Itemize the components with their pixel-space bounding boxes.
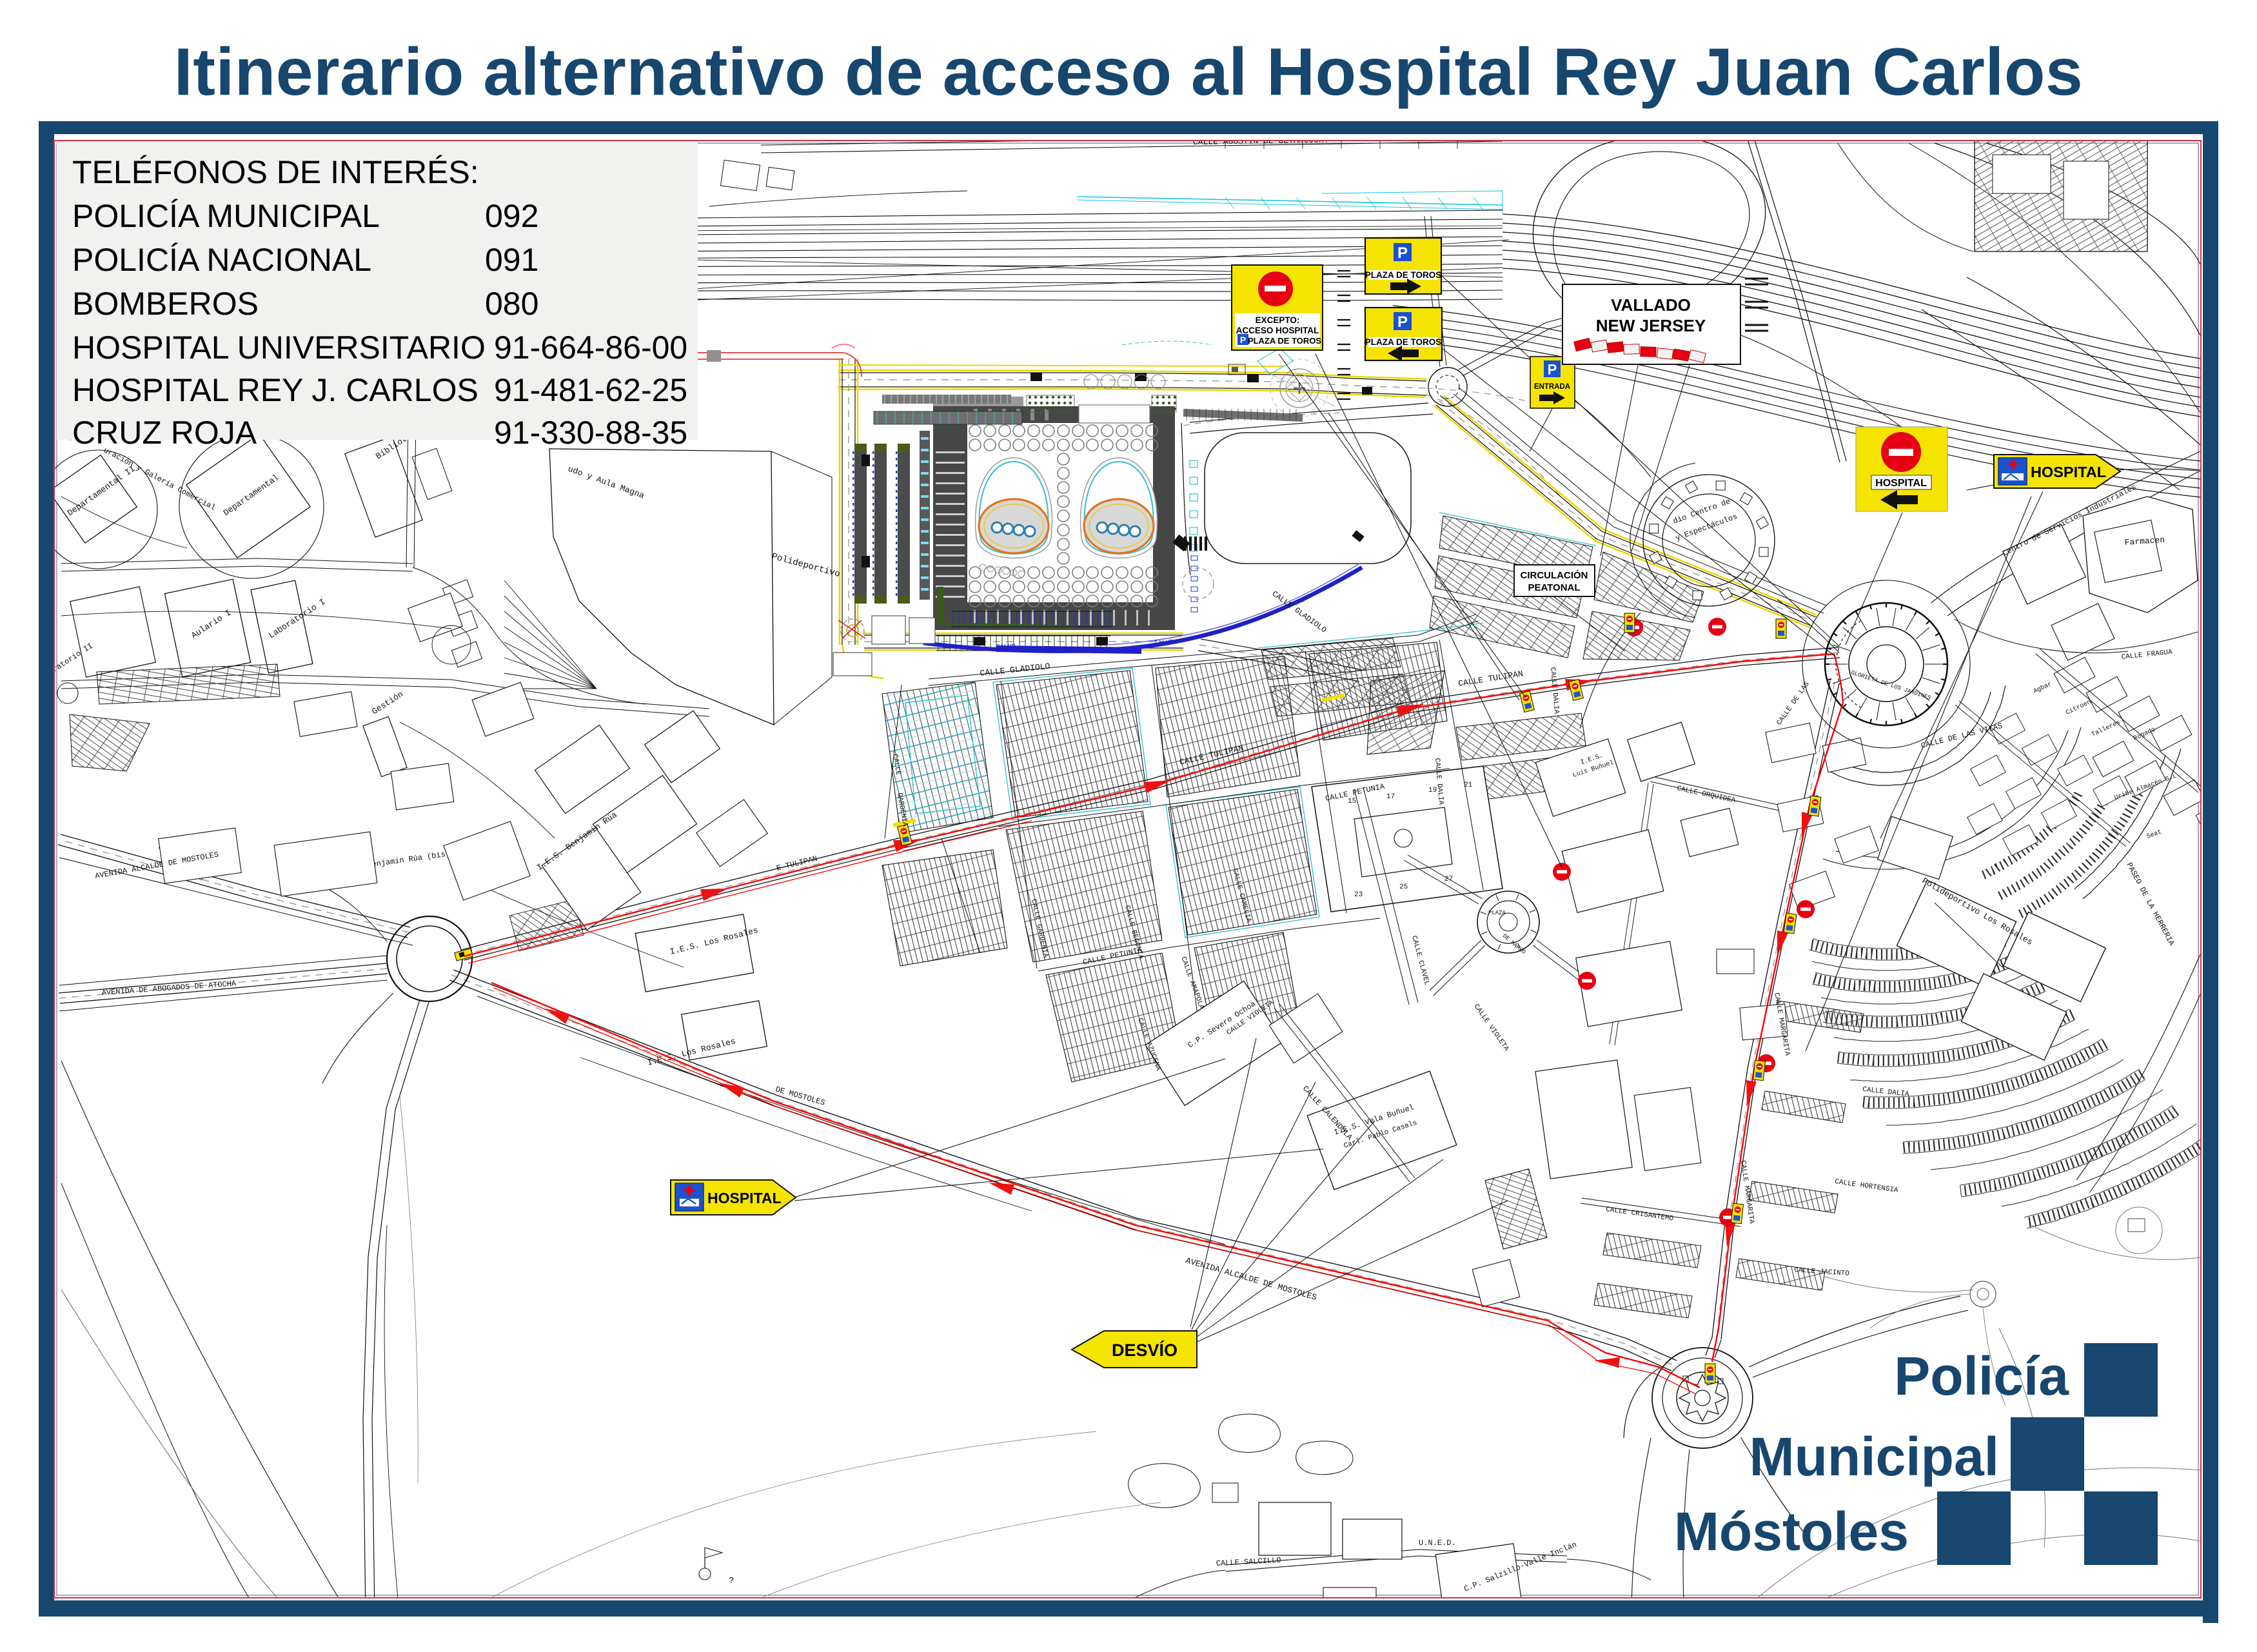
svg-text:?: ? [729,1576,734,1586]
svg-text:POLICÍA MUNICIPAL: POLICÍA MUNICIPAL [72,198,380,234]
svg-text:CIRCULACIÓN: CIRCULACIÓN [1521,569,1588,581]
svg-text:Itinerario alternativo de acce: Itinerario alternativo de acceso al Hosp… [174,35,2083,110]
svg-text:TALUD: TALUD [1154,639,1174,647]
svg-text:15: 15 [1348,798,1356,805]
svg-text:092: 092 [485,198,538,234]
svg-text:17: 17 [1386,793,1395,801]
svg-text:91-481-62-25: 91-481-62-25 [494,372,687,408]
svg-text:091: 091 [485,242,538,278]
svg-text:PLAZA DE TOROS: PLAZA DE TOROS [1248,336,1321,346]
svg-text:VALLADO: VALLADO [1611,295,1691,315]
svg-text:HOSPITAL REY J. CARLOS: HOSPITAL REY J. CARLOS [72,372,478,408]
svg-text:HOSPITAL: HOSPITAL [707,1190,782,1206]
svg-text:HOSPITAL: HOSPITAL [2031,464,2106,480]
svg-text:ACCESO HOSPITAL: ACCESO HOSPITAL [1236,326,1319,335]
svg-text:Móstoles: Móstoles [1674,1501,1909,1562]
svg-text:P: P [1240,335,1246,345]
svg-text:BOMBEROS: BOMBEROS [72,286,259,322]
svg-text:Municipal: Municipal [1749,1426,1999,1487]
svg-text:ENTRADA: ENTRADA [1534,383,1570,391]
svg-text:CRUZ ROJA: CRUZ ROJA [72,415,257,451]
svg-text:25: 25 [1399,883,1408,891]
svg-text:PLAZA DE TOROS: PLAZA DE TOROS [1365,270,1442,280]
svg-text:91-664-86-00: 91-664-86-00 [494,329,687,366]
svg-text:P: P [1397,244,1408,262]
svg-text:NEW JERSEY: NEW JERSEY [1596,316,1706,335]
svg-text:U.N.E.D.: U.N.E.D. [1419,1539,1456,1548]
svg-text:Policía: Policía [1894,1346,2069,1406]
svg-text:EXCEPTO:: EXCEPTO: [1256,315,1300,325]
svg-text:080: 080 [485,286,538,322]
svg-text:P: P [1548,361,1557,377]
svg-text:HOSPITAL UNIVERSITARIO: HOSPITAL UNIVERSITARIO [72,329,486,366]
svg-text:P: P [1397,313,1408,331]
svg-text:91-330-88-35: 91-330-88-35 [494,415,687,451]
svg-text:PLAZA DE TOROS: PLAZA DE TOROS [1365,337,1442,347]
svg-text:23: 23 [1354,891,1363,899]
svg-text:27: 27 [1444,876,1453,883]
svg-text:PLAZA: PLAZA [1488,910,1506,916]
svg-text:DESVÍO: DESVÍO [1112,1340,1178,1360]
svg-text:HOSPITAL: HOSPITAL [1875,478,1927,489]
svg-text:TELÉFONOS DE INTERÉS:: TELÉFONOS DE INTERÉS: [72,154,479,190]
svg-text:POLICÍA NACIONAL: POLICÍA NACIONAL [72,242,371,278]
svg-text:PEATONAL: PEATONAL [1528,582,1580,593]
svg-text:TALUD: TALUD [996,644,1016,651]
